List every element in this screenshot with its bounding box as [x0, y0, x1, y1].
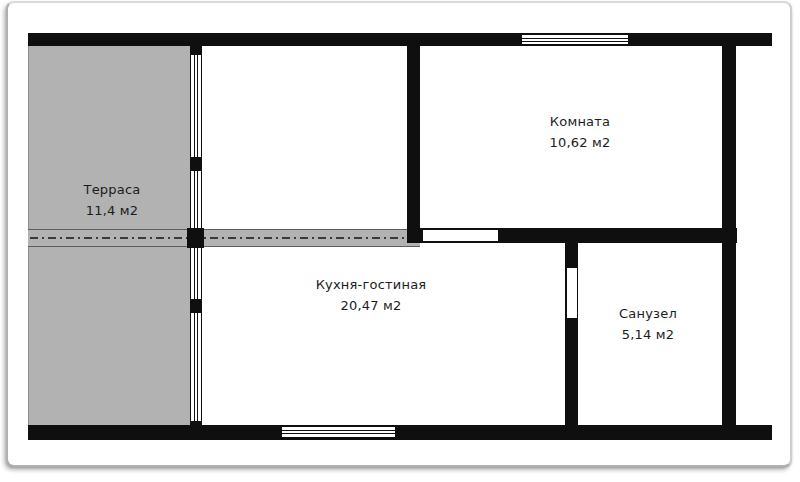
- wall-room-left: [407, 46, 420, 243]
- terrace-label: Терраса 11,4 м2: [37, 179, 187, 221]
- wall-bottom: [28, 425, 772, 440]
- wall-top: [28, 33, 772, 46]
- wall-band-crossing-block: [187, 228, 204, 248]
- section-dash-band: [28, 229, 420, 247]
- bottom-wall-window-icon: [282, 427, 395, 437]
- glazed-wall-window-4-icon: [191, 313, 201, 421]
- glazed-wall-window-3-icon: [191, 248, 201, 299]
- bathroom-label: Санузел 5,14 м2: [573, 303, 723, 345]
- room-label: Комната 10,62 м2: [505, 111, 655, 153]
- bathroom-area: 5,14 м2: [573, 324, 723, 345]
- room-door-opening: [423, 230, 498, 241]
- terrace-area: 11,4 м2: [37, 200, 187, 221]
- dash-dot-line: [30, 237, 418, 239]
- floor-plan: Терраса 11,4 м2 Кухня-гостиная 20,47 м2 …: [0, 0, 800, 482]
- floor-plan-photo: Терраса 11,4 м2 Кухня-гостиная 20,47 м2 …: [0, 0, 800, 482]
- bathroom-name: Санузел: [573, 303, 723, 324]
- room-name: Комната: [505, 111, 655, 132]
- terrace-name: Терраса: [37, 179, 187, 200]
- top-wall-window-icon: [522, 35, 628, 44]
- room-area: 10,62 м2: [505, 132, 655, 153]
- kitchen-living-label: Кухня-гостиная 20,47 м2: [296, 274, 446, 316]
- glazed-wall-window-2-icon: [191, 171, 201, 228]
- kitchen-living-name: Кухня-гостиная: [296, 274, 446, 295]
- glazed-wall-window-1-icon: [191, 55, 201, 157]
- kitchen-living-area: 20,47 м2: [296, 295, 446, 316]
